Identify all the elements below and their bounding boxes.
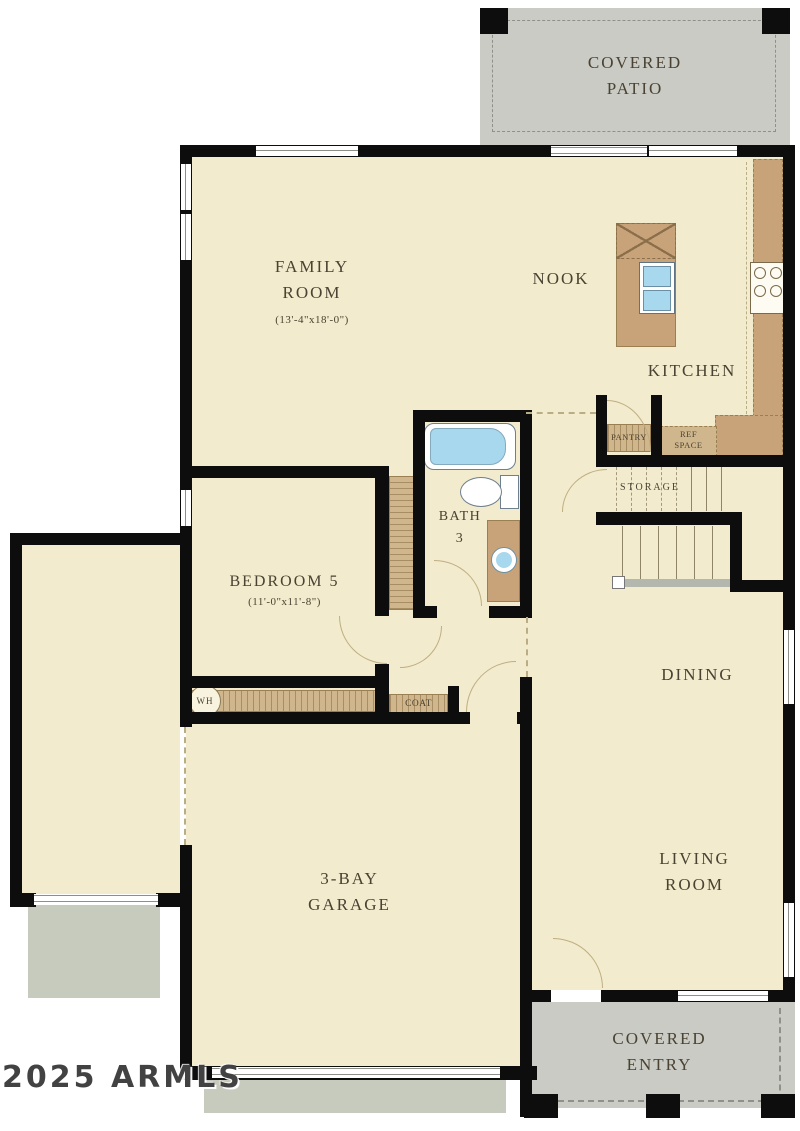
entry-post: [761, 1094, 795, 1118]
bay-divider-dashed: [184, 727, 186, 845]
bay-driveway-apron: [28, 905, 160, 998]
garage-door: [212, 1067, 500, 1078]
left-bay-floor: [22, 545, 180, 895]
room-label-bedroom-5: BEDROOM 5: [197, 570, 372, 595]
entry-post: [646, 1094, 680, 1118]
wall: [651, 395, 662, 455]
wall: [10, 533, 186, 545]
bedroom-closet-shelf: [389, 476, 415, 610]
patio-post: [762, 8, 790, 34]
room-label-garage: 3-BAY GARAGE: [277, 866, 422, 919]
window: [784, 903, 794, 977]
wall: [10, 533, 22, 905]
room-label-kitchen: KITCHEN: [637, 358, 747, 384]
stair-tread: [694, 526, 695, 581]
room-label-ref-space: REF SPACE: [662, 429, 715, 451]
wall: [730, 580, 795, 592]
floor-plan: WH: [0, 0, 800, 1131]
wall: [517, 712, 532, 724]
wall: [520, 677, 532, 1117]
wall: [783, 145, 795, 1002]
window: [181, 164, 191, 210]
stair-tread: [721, 467, 722, 511]
wall: [180, 676, 380, 688]
wall: [596, 455, 795, 467]
window: [256, 146, 358, 156]
burner-icon: [770, 267, 782, 279]
toilet-tank: [500, 475, 519, 509]
room-dims-bedroom-5: (11'-0"x11'-8"): [197, 594, 372, 611]
wall: [413, 410, 425, 610]
stair-tread: [706, 467, 707, 511]
kitchen-sink: [639, 262, 675, 314]
sliding-door: [551, 146, 647, 156]
room-label-storage: STORAGE: [612, 480, 688, 496]
front-door-opening: [551, 990, 601, 1002]
burner-icon: [754, 267, 766, 279]
wall: [413, 606, 437, 618]
entry-post: [524, 1094, 558, 1118]
room-label-bath-3: BATH 3: [432, 506, 488, 549]
room-label-family-room: FAMILY ROOM: [227, 254, 397, 307]
sink-basin: [643, 266, 671, 287]
island-bar-hatch: [616, 223, 676, 259]
garage-door: [34, 894, 158, 905]
armls-watermark: 2025 ARMLS: [2, 1060, 243, 1095]
stair-tread: [622, 526, 623, 581]
cooktop: [750, 262, 786, 314]
stair-tread: [658, 526, 659, 581]
room-label-coat: COAT: [391, 698, 446, 710]
vanity-sink: [492, 548, 516, 572]
bathtub-water: [430, 428, 506, 465]
wall: [156, 893, 192, 907]
burner-icon: [754, 285, 766, 297]
wall: [413, 410, 532, 422]
sink-basin: [643, 290, 671, 311]
toilet: [460, 477, 502, 507]
stair-newel: [612, 576, 625, 589]
room-label-pantry: PANTRY: [605, 432, 653, 443]
room-label-covered-patio: COVERED PATIO: [495, 50, 775, 103]
ceiling-break-dashed: [526, 412, 596, 414]
wall: [375, 466, 389, 616]
patio-post: [480, 8, 508, 34]
stair-landing-edge: [616, 579, 734, 587]
wall: [378, 686, 389, 716]
wall: [596, 512, 742, 525]
stair-tread: [676, 526, 677, 581]
room-label-living-room: LIVING ROOM: [637, 846, 752, 899]
garage-driveway-apron: [204, 1080, 506, 1113]
stair-tread: [691, 467, 692, 511]
room-label-dining: DINING: [645, 662, 750, 688]
wall: [520, 410, 532, 617]
wall: [180, 466, 387, 478]
window: [649, 146, 737, 156]
stair-tread: [640, 526, 641, 581]
wall: [596, 395, 607, 455]
wall: [180, 845, 192, 1080]
room-dims-family-room: (13'-4"x18'-0"): [227, 312, 397, 329]
wall: [180, 712, 380, 724]
hall-archway-dashed: [526, 617, 528, 677]
window: [181, 490, 191, 526]
covered-entry-dashed-edge: [779, 1008, 781, 1100]
room-label-nook: NOOK: [516, 266, 606, 292]
window: [784, 630, 794, 704]
wall: [448, 686, 459, 716]
window: [181, 214, 191, 260]
burner-icon: [770, 285, 782, 297]
wall: [10, 893, 36, 907]
stair-tread: [712, 526, 713, 581]
room-label-covered-entry: COVERED ENTRY: [552, 1026, 767, 1079]
window: [678, 991, 768, 1001]
kitchen-counter-corner: [715, 415, 783, 457]
